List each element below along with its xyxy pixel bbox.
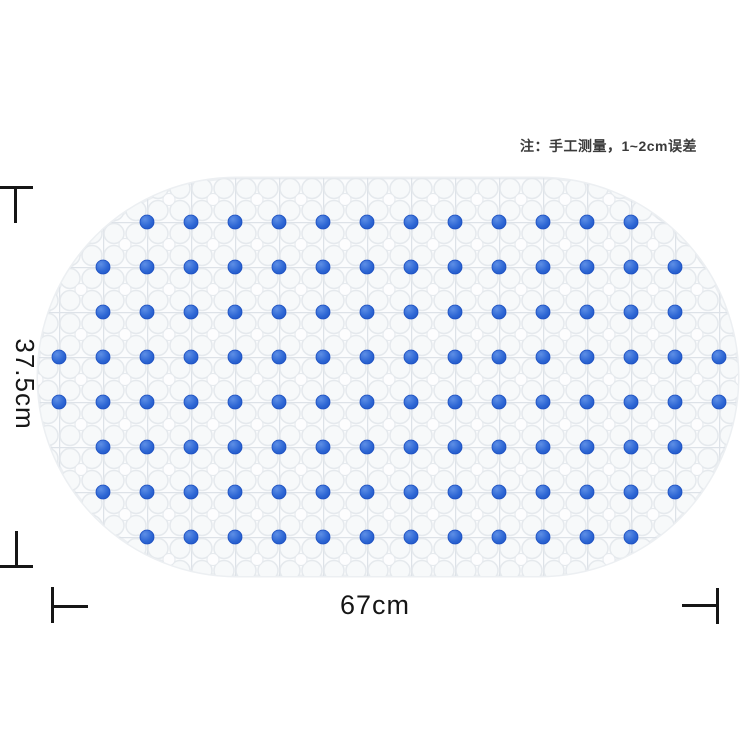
suction-dot [404,485,418,499]
suction-dot [96,485,110,499]
suction-dot [492,350,506,364]
suction-dot [96,260,110,274]
suction-dot [536,485,550,499]
suction-dot [624,260,638,274]
suction-dot [228,215,242,229]
suction-dot [492,215,506,229]
suction-dot [360,260,374,274]
suction-dot [272,305,286,319]
suction-dot [272,485,286,499]
suction-dot [228,350,242,364]
suction-dot [404,395,418,409]
suction-dot [184,395,198,409]
suction-dot [96,350,110,364]
suction-dot [668,305,682,319]
suction-dot [448,305,462,319]
suction-dot [536,350,550,364]
suction-dot [448,485,462,499]
suction-dot [316,485,330,499]
suction-dot [316,215,330,229]
suction-dot [140,485,154,499]
suction-dot [316,305,330,319]
suction-dot [184,440,198,454]
suction-dot [184,530,198,544]
width-dimension-label: 67cm [313,590,437,621]
suction-dot [184,215,198,229]
suction-dot [580,485,594,499]
suction-dot [52,350,66,364]
suction-dot [668,260,682,274]
suction-dot [228,260,242,274]
suction-dot [580,440,594,454]
suction-dot [316,260,330,274]
suction-dot [272,440,286,454]
suction-dot [624,440,638,454]
suction-dot [140,440,154,454]
suction-dot [360,530,374,544]
height-dim-bottom-stem [15,531,18,568]
suction-dot [404,440,418,454]
suction-dot [404,350,418,364]
suction-dot [668,350,682,364]
suction-dot [404,215,418,229]
suction-dot [272,530,286,544]
suction-dot [712,395,726,409]
suction-dot [536,395,550,409]
bath-mat-texture [38,178,738,576]
suction-dot [448,395,462,409]
suction-dot [492,395,506,409]
suction-dot [272,395,286,409]
product-photo-canvas: 注：手工测量，1~2cm误差 37.5cm 67cm [0,0,750,750]
suction-dot [448,530,462,544]
suction-dot [228,305,242,319]
suction-dot [448,350,462,364]
height-dimension-label: 37.5cm [10,332,40,436]
suction-dot [316,395,330,409]
suction-dot [228,485,242,499]
suction-dot [316,350,330,364]
suction-dot [668,395,682,409]
suction-dot [624,305,638,319]
suction-dot [492,485,506,499]
suction-dot [140,350,154,364]
suction-dot [360,305,374,319]
suction-dot [184,305,198,319]
suction-dot [668,440,682,454]
suction-dot [580,215,594,229]
suction-dot [668,485,682,499]
suction-dot [536,260,550,274]
suction-dot [316,530,330,544]
suction-dot [140,395,154,409]
suction-dot [404,530,418,544]
suction-dot [228,530,242,544]
suction-dot [184,350,198,364]
suction-dot [404,260,418,274]
suction-dot [360,440,374,454]
suction-dot [580,260,594,274]
suction-dot [580,350,594,364]
suction-dot [184,485,198,499]
suction-dot [360,350,374,364]
suction-dot [448,260,462,274]
width-dim-right-bar [682,604,719,607]
suction-dot [624,485,638,499]
suction-dot [272,215,286,229]
suction-dot [492,440,506,454]
suction-dot [272,260,286,274]
suction-dot [140,260,154,274]
suction-dot [140,215,154,229]
suction-dot [360,395,374,409]
suction-dot [624,350,638,364]
suction-dot [184,260,198,274]
suction-dot [360,485,374,499]
suction-dot [140,305,154,319]
suction-dot [448,440,462,454]
suction-dot [536,530,550,544]
width-dim-left-bar [51,605,88,608]
suction-dot [228,395,242,409]
suction-dot [624,395,638,409]
suction-dot [712,350,726,364]
suction-dot [536,215,550,229]
suction-dot [404,305,418,319]
suction-dot [448,215,462,229]
measurement-note: 注：手工测量，1~2cm误差 [520,136,730,156]
suction-dot [360,215,374,229]
suction-dot [536,305,550,319]
suction-dot [228,440,242,454]
suction-dot [492,260,506,274]
suction-dot [492,305,506,319]
suction-dot [96,440,110,454]
suction-dot [316,440,330,454]
height-dim-top-stem [14,186,17,223]
suction-dot [96,395,110,409]
suction-dot [580,395,594,409]
suction-dot [52,395,66,409]
suction-dot [624,530,638,544]
suction-dot [492,530,506,544]
bath-mat-photo [0,0,750,750]
suction-dot [96,305,110,319]
suction-dot [580,530,594,544]
suction-dot [624,215,638,229]
suction-dot [140,530,154,544]
suction-dot [580,305,594,319]
suction-dot [536,440,550,454]
suction-dot [272,350,286,364]
